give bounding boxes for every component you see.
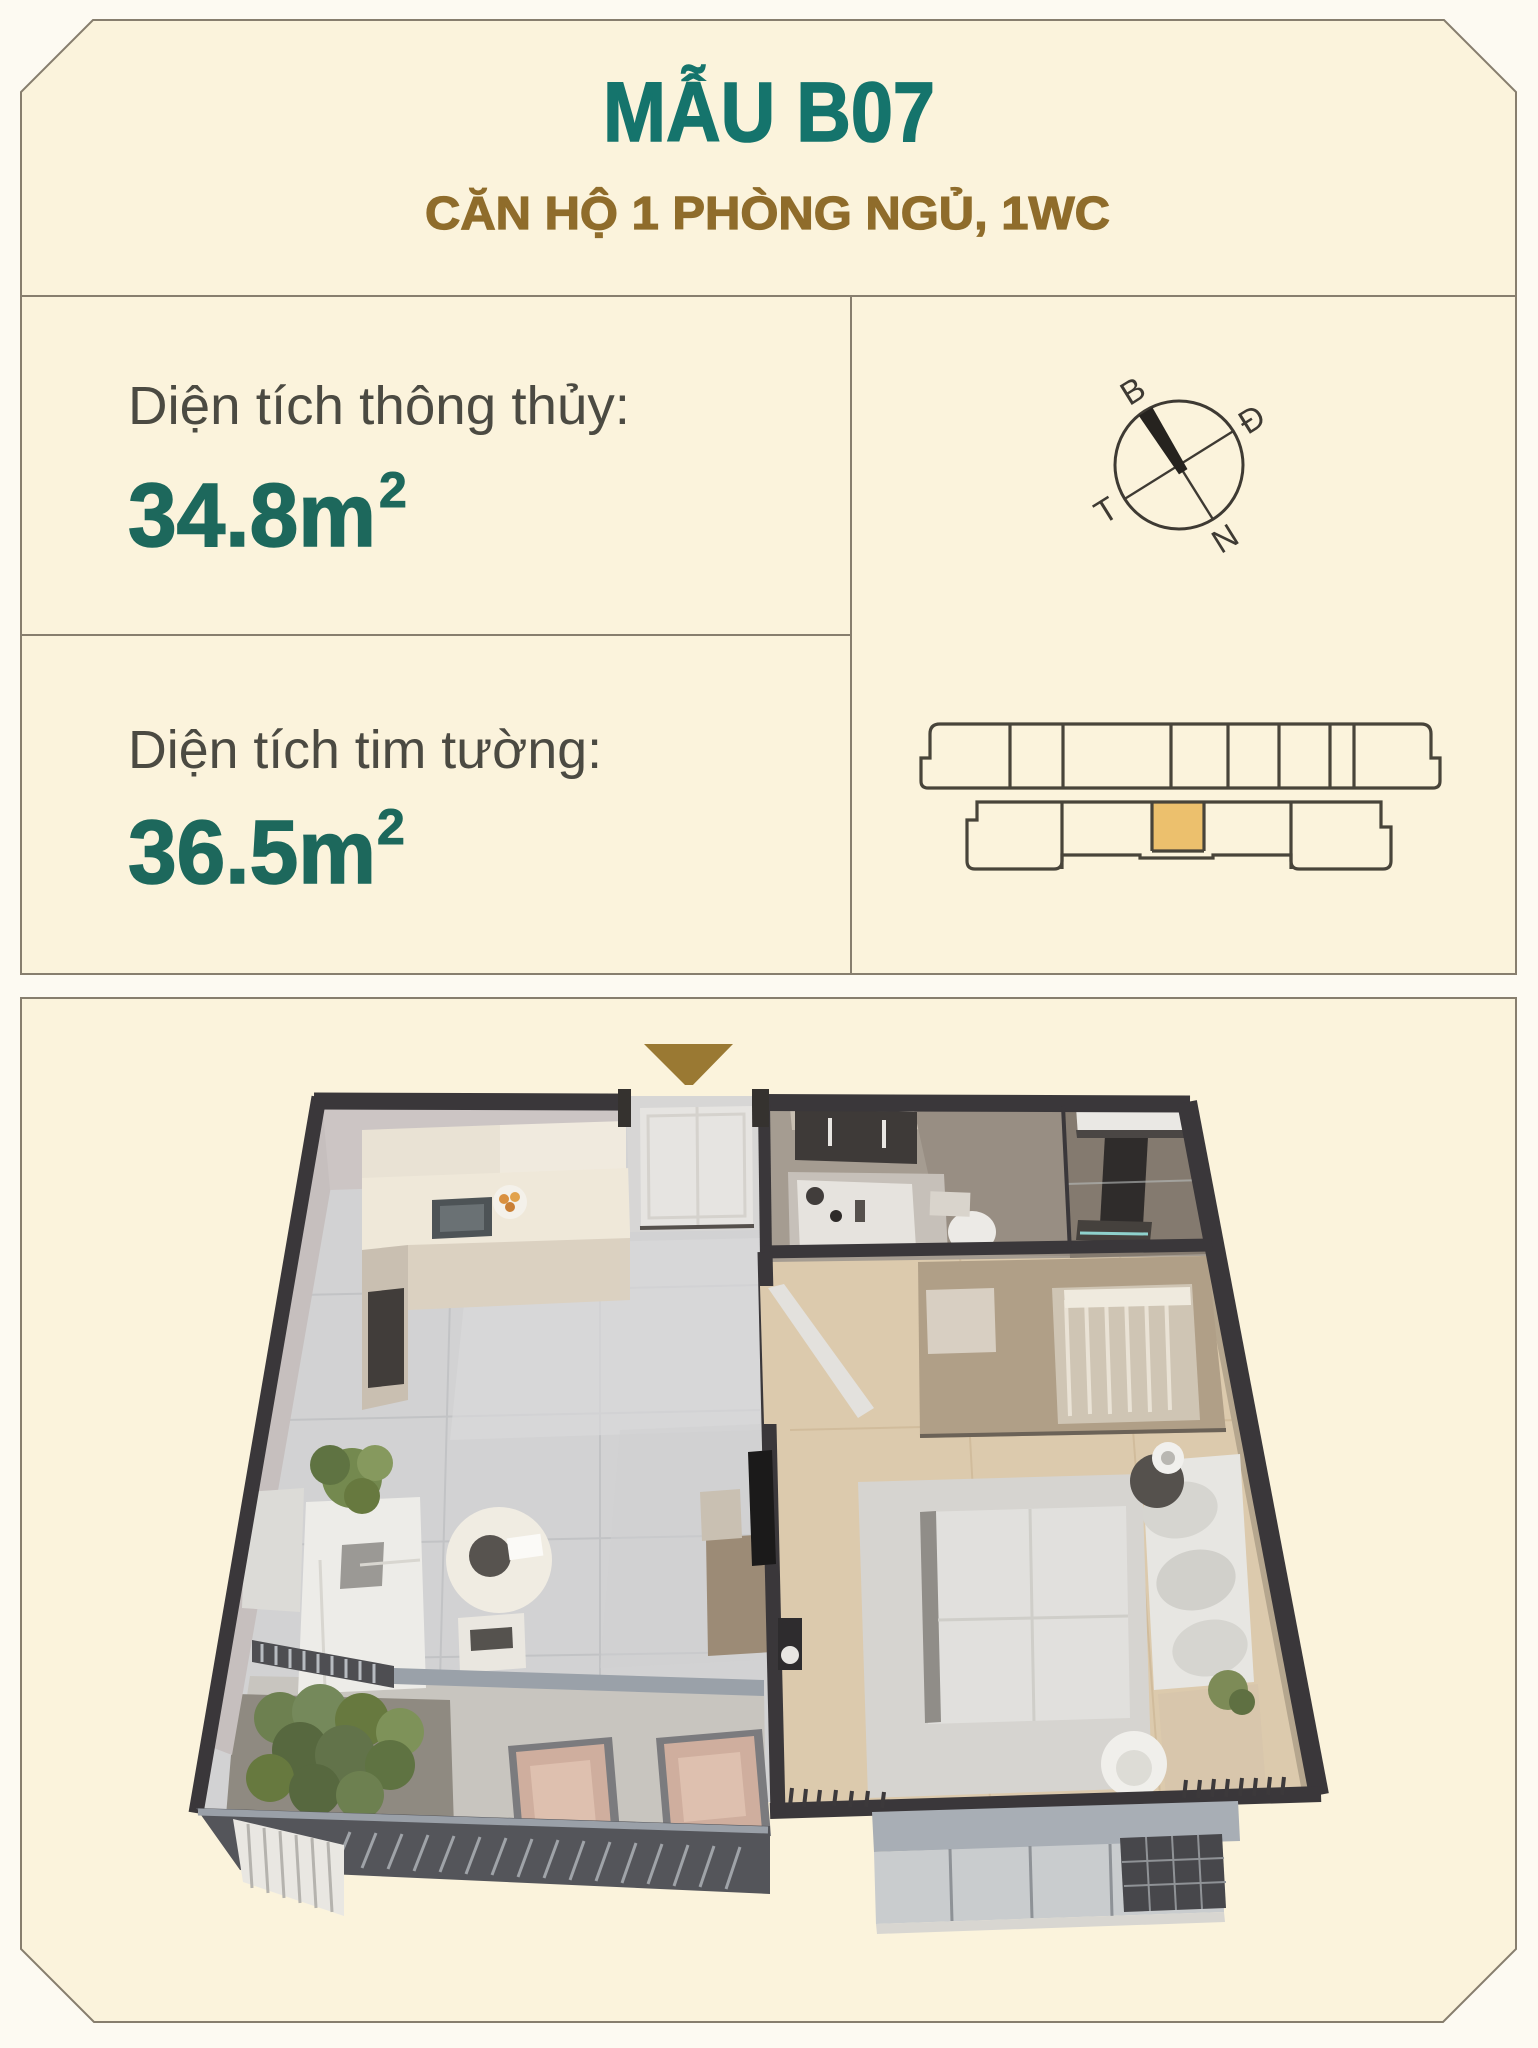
svg-text:34.8m: 34.8m bbox=[128, 466, 376, 566]
svg-text:2: 2 bbox=[379, 462, 407, 518]
svg-text:2: 2 bbox=[377, 799, 405, 855]
svg-text:36.5m: 36.5m bbox=[128, 803, 376, 903]
svg-text:Diện tích tim tường:: Diện tích tim tường: bbox=[128, 720, 602, 780]
svg-text:Diện tích thông thủy:: Diện tích thông thủy: bbox=[128, 376, 630, 436]
svg-text:CĂN HỘ 1 PHÒNG NGỦ, 1WC: CĂN HỘ 1 PHÒNG NGỦ, 1WC bbox=[425, 187, 1110, 239]
svg-text:MẪU B07: MẪU B07 bbox=[603, 65, 935, 159]
